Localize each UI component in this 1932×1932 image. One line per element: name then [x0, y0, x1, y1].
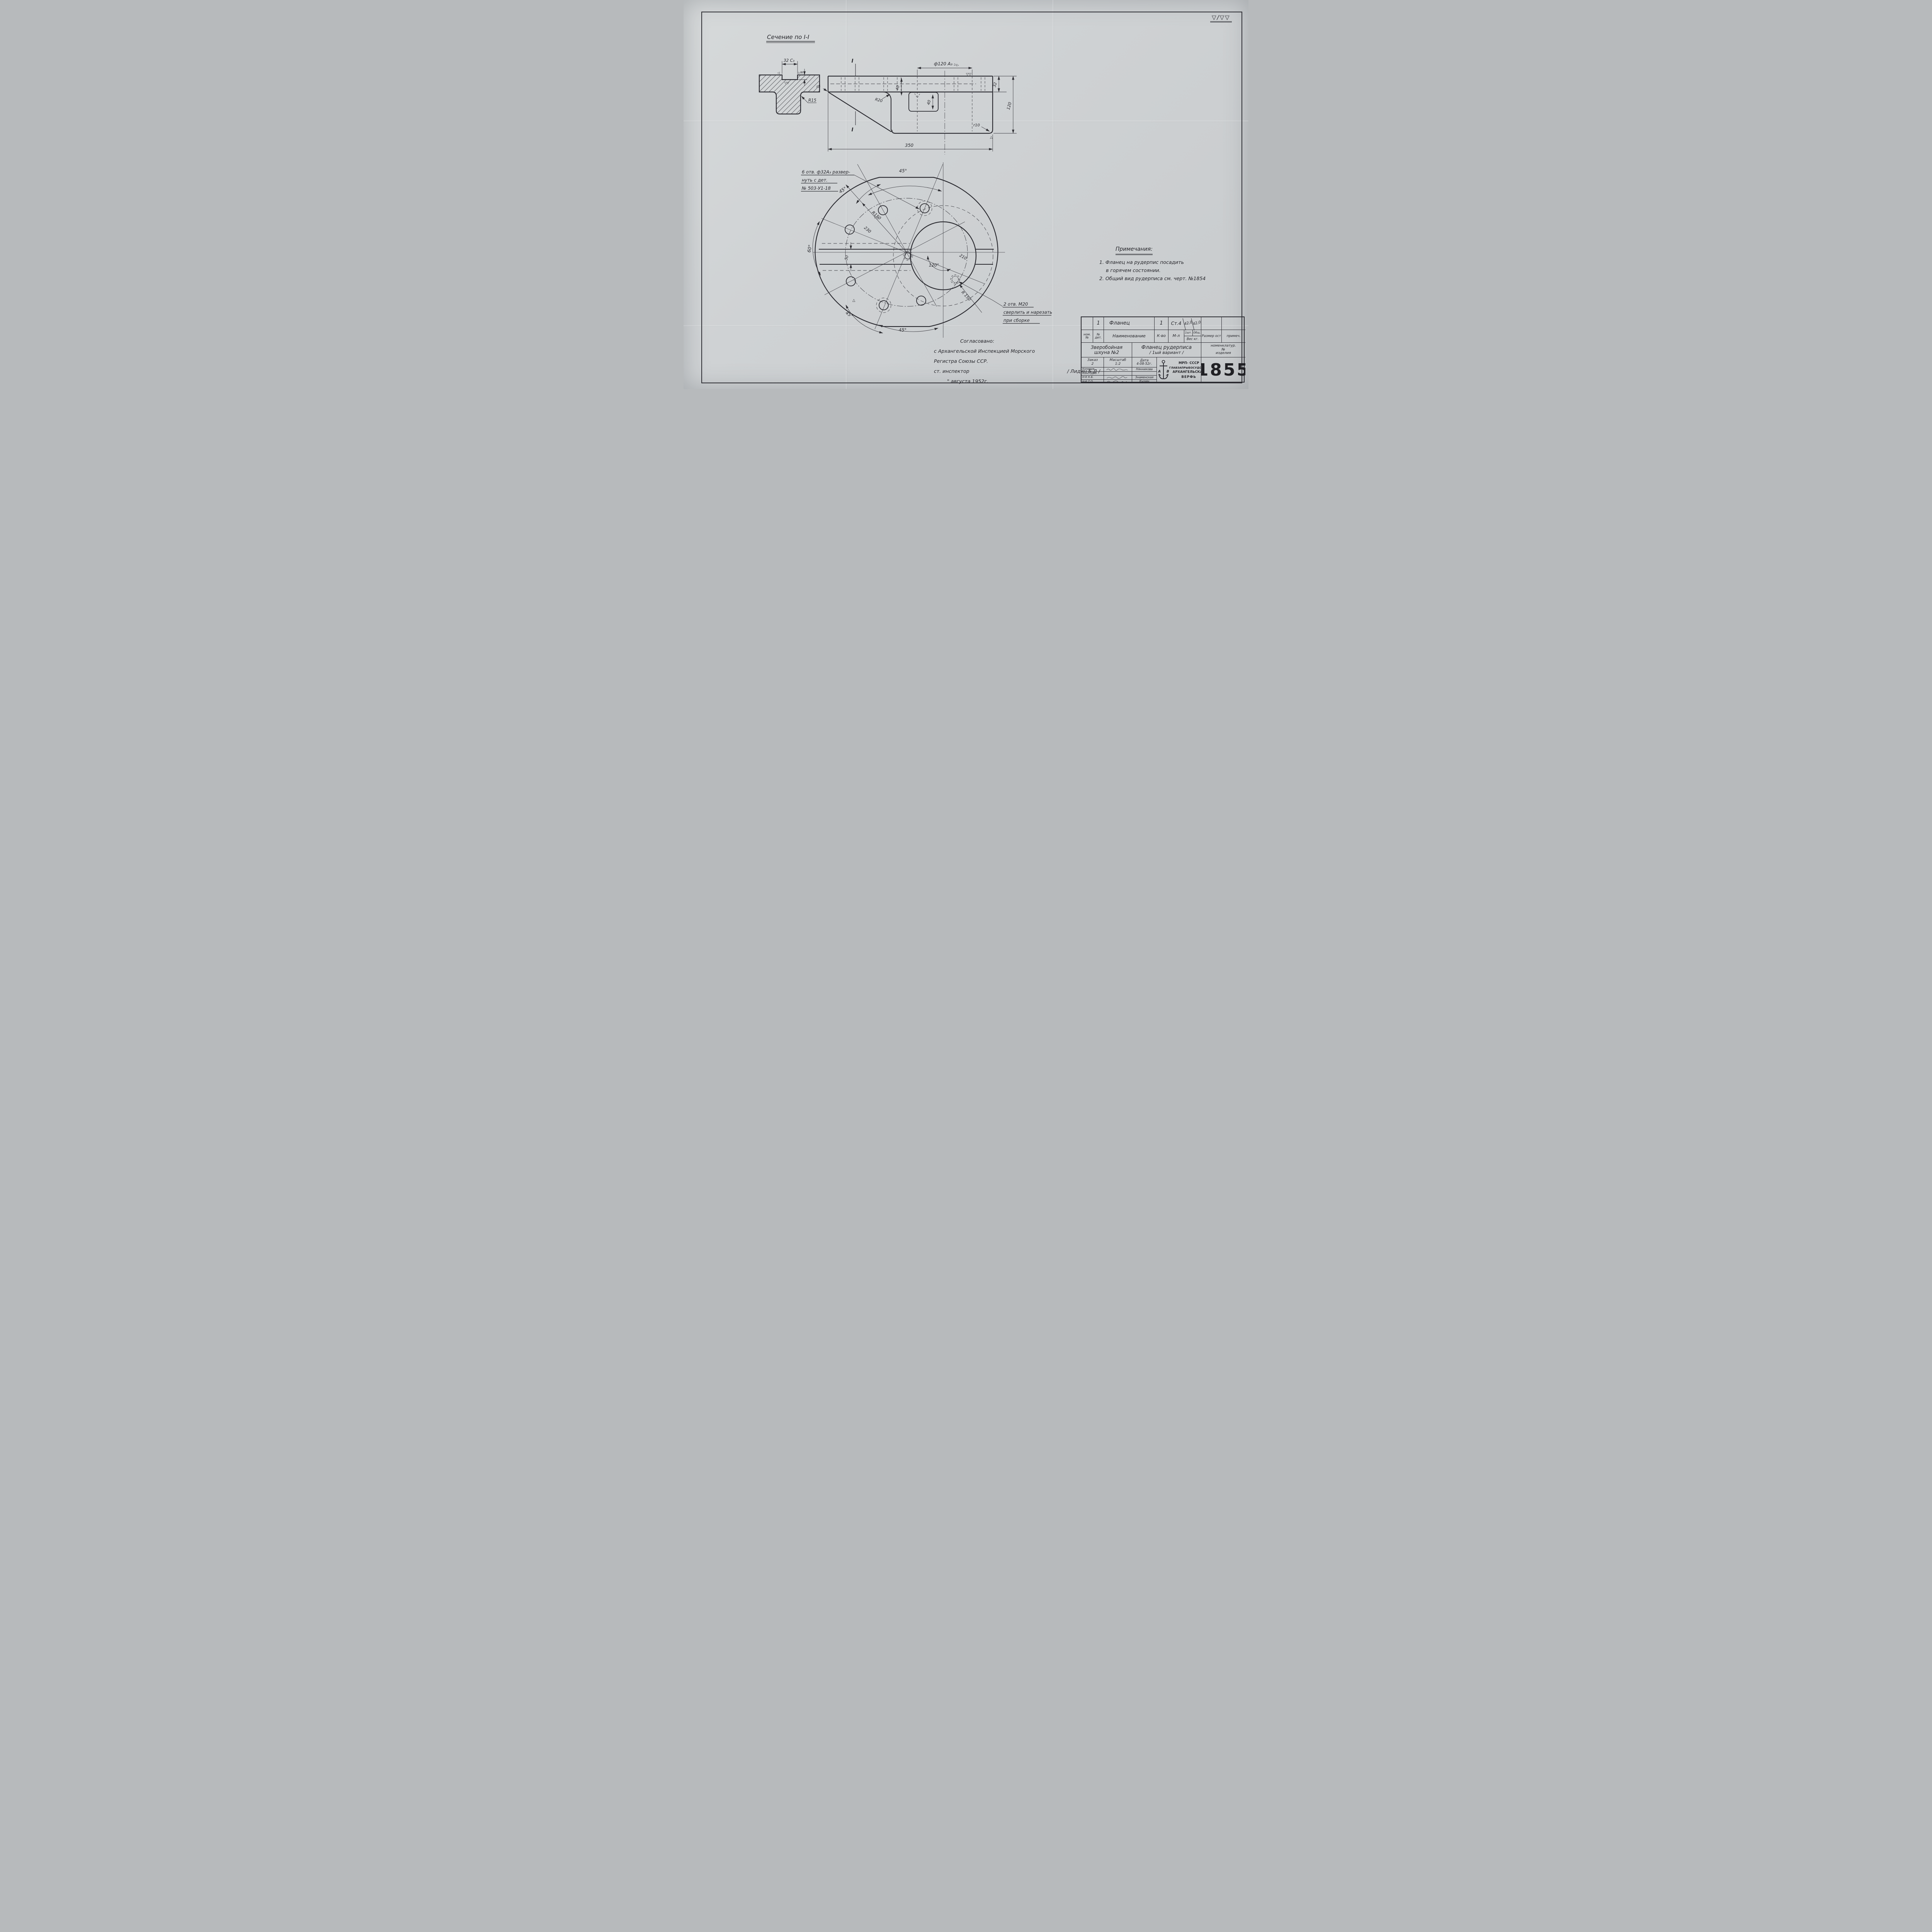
approval-date: " августа 1952г.	[947, 376, 1100, 386]
flag-left-icon: ◁	[777, 71, 780, 75]
row-nk-to-label: Н-К Т.О.	[1082, 379, 1104, 384]
holes-note-line2: нуть с дет.	[802, 177, 828, 183]
hdr-weight-total: Общ.	[1192, 330, 1201, 336]
m20-note-line1: 2 отв. М20	[1003, 301, 1028, 307]
section-t-profile	[759, 75, 820, 114]
flange-view: 50 45° 45° 60° 45° 45° 120° R150 230 R 1…	[801, 162, 1052, 338]
dim-210: 210	[959, 253, 968, 261]
finish-flags-icon: ▷▷	[954, 63, 960, 67]
org-line-2: ГЛАВЗАПРЫБОСУДОСТР.	[1169, 366, 1201, 370]
row-constructor-label: Конструк.	[1082, 371, 1104, 376]
drawing-title-line-2: / 1ый вариант /	[1150, 350, 1184, 355]
hdr-material: М-л	[1168, 330, 1184, 342]
copier-signature	[1104, 367, 1132, 371]
r150-lower-dim: R 150	[960, 290, 972, 302]
bore-diameter-dim: ф120 А₃	[934, 61, 952, 66]
side-view: I I ф120 А₃ ▷▷ ▽▽ 40 40 32 120 350	[816, 58, 1017, 155]
logo-letter-right: В	[1167, 370, 1169, 374]
section-mark-top: I	[852, 58, 854, 64]
notes-block: Примечания: 1. Фланец на рудерпис посади…	[1099, 245, 1235, 282]
section-depth-dim: 6	[800, 71, 804, 73]
angle-center: 120°	[929, 263, 939, 268]
fillet-r5: r5	[816, 85, 820, 89]
row-copier-name: Нянникова	[1132, 367, 1156, 371]
dim-230: 230	[863, 226, 872, 234]
part-material: Ст.4	[1168, 317, 1184, 330]
m20-note-line2: сверлить и нарезать	[1003, 310, 1052, 315]
angle-left: 60°	[806, 244, 813, 253]
hdr-qty: К-во	[1154, 330, 1168, 342]
holes-note-line1: 6 отв. ф32А₃ развер-	[802, 169, 850, 175]
hdr-det-no: № дет.	[1093, 330, 1104, 342]
shipyard-anchor-logo: А В	[1158, 359, 1169, 382]
part-qty: 1	[1154, 317, 1168, 330]
approval-inspector-label: ст. инспектор	[934, 366, 969, 376]
nomen-line-3: изделия	[1216, 352, 1231, 355]
side-finish-top: ▽▽	[966, 73, 971, 77]
note-1-line-1: 1. Фланец на рудерпис посадить	[1099, 259, 1184, 265]
part-name: Фланец	[1104, 317, 1154, 330]
row-nk-kb-label: Н-К К.Б.	[1082, 375, 1104, 379]
fillet-r20: R20	[874, 97, 883, 103]
keyway-pocket	[909, 92, 938, 111]
hdr-weight-item: 1шт.	[1184, 330, 1192, 336]
logo-letter-left: А	[1158, 370, 1161, 374]
dim-40-top: 40	[895, 85, 901, 91]
m20-note-line3: при сборке	[1003, 318, 1030, 323]
org-line-4: ВЕРФЬ	[1169, 375, 1201, 380]
side-finish-bottom: △	[990, 136, 993, 139]
m20-hole-right	[952, 276, 959, 283]
section-fillet-dim: R15	[808, 98, 816, 103]
dim-40-keyway: 40	[927, 100, 932, 105]
hdr-size: Размер ост	[1201, 330, 1221, 342]
angle-top: 45°	[899, 168, 907, 173]
hdr-nom-no: ном. №	[1082, 330, 1093, 342]
date-value: 4-08-52г.	[1136, 362, 1152, 366]
fillet-r10: r10	[973, 123, 980, 128]
org-line-3: АРХАНГЕЛЬСКАЯ	[1169, 370, 1201, 375]
section-title: Сечение по I-I	[767, 34, 810, 41]
angle-bottom-left: 45°	[845, 310, 854, 319]
bolt-hole	[879, 301, 888, 310]
groove-finish-mark: ▽▽	[784, 81, 789, 85]
angle-bottom: 45°	[899, 327, 906, 333]
holes-note-line3: № 503-У1-18	[801, 185, 831, 191]
hdr-note: примеч.	[1221, 330, 1245, 342]
note-2: 2. Общий вид рудерписа см. черт. №1854	[1099, 276, 1206, 281]
flange-rim	[815, 177, 998, 327]
approval-line-3: Регистра Союзы ССР.	[934, 356, 1100, 366]
row-nk-kb-name: Знаменская	[1132, 375, 1156, 379]
approval-line-2: с Архангельской Инспекцией Морского	[934, 346, 1100, 356]
dim-120: 120	[1006, 102, 1013, 111]
row-copier-label: Копиров.	[1082, 367, 1104, 371]
nk-kb-signature	[1104, 375, 1132, 379]
dim-32: 32	[993, 82, 998, 88]
hdr-name: Наименование	[1104, 330, 1154, 342]
row-nk-to-name: Кычин	[1132, 379, 1156, 384]
drawing-number: 1855	[1201, 357, 1245, 383]
section-view: Сечение по I-I ▽▽ ◁ ▷ 32 C₃ 6 R15	[759, 34, 820, 114]
order-value: 2	[1092, 362, 1094, 366]
dim-350: 350	[905, 143, 913, 148]
bolt-hole	[917, 296, 926, 305]
title-block: 1 Фланец 1 Ст.4 42,0 42,0 ном. № № дет. …	[1081, 316, 1245, 383]
org-line-1: МРП- СССР	[1169, 361, 1201, 366]
nk-to-signature	[1104, 379, 1132, 384]
approval-block: Согласовано: с Архангельской Инспекцией …	[934, 336, 1100, 386]
drawing-title-line-1: Фланец рудерписа	[1141, 345, 1192, 350]
section-mark-bottom: I	[852, 127, 854, 133]
keyway-width-dim: 50	[844, 255, 850, 261]
row-constructor-name	[1132, 371, 1156, 376]
part-det-no: 1	[1093, 317, 1104, 330]
constructor-signature	[1104, 371, 1132, 376]
notes-title: Примечания:	[1116, 245, 1153, 255]
section-width-dim: 32 C₃	[784, 58, 794, 63]
note-1-line-2: в горячем состоянии.	[1099, 267, 1161, 273]
blueprint-sheet: ▽/▽▽ Сечение по I-I ▽▽ ◁ ▷ 32 C₃	[684, 0, 1248, 389]
scale-value: 1:2	[1115, 362, 1121, 366]
project-line-1: Зверобойная	[1091, 345, 1122, 350]
hdr-weight: Вес кг.	[1184, 336, 1201, 342]
approval-title: Согласовано:	[960, 336, 1100, 346]
rim-finish-mark: △	[852, 298, 855, 303]
project-line-2: шхуна №2	[1094, 350, 1119, 355]
